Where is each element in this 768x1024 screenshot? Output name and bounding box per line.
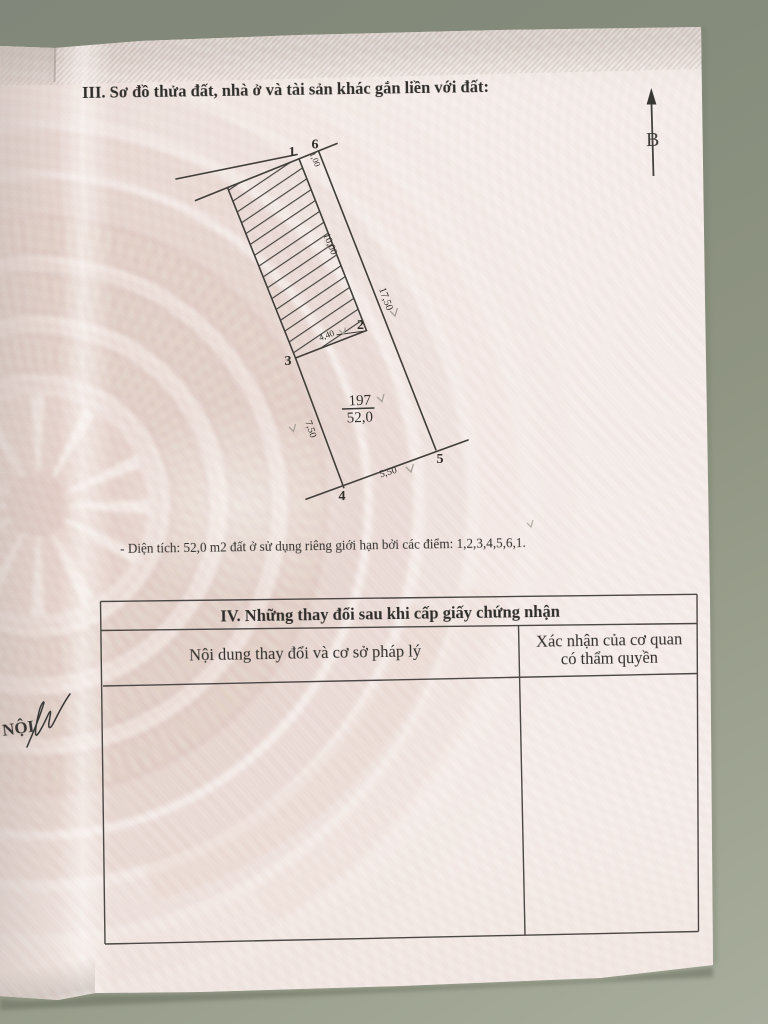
svg-text:1: 1	[289, 145, 296, 160]
svg-text:17,50: 17,50	[376, 286, 394, 312]
svg-text:5: 5	[437, 452, 444, 467]
svg-text:4: 4	[339, 489, 346, 504]
svg-text:3: 3	[285, 354, 292, 369]
svg-text:197: 197	[348, 393, 372, 410]
svg-text:7,50: 7,50	[302, 419, 318, 439]
svg-text:5,50: 5,50	[378, 465, 398, 481]
svg-text:52,0: 52,0	[346, 410, 373, 427]
svg-text:1,00: 1,00	[308, 151, 323, 169]
svg-text:2: 2	[357, 318, 364, 333]
